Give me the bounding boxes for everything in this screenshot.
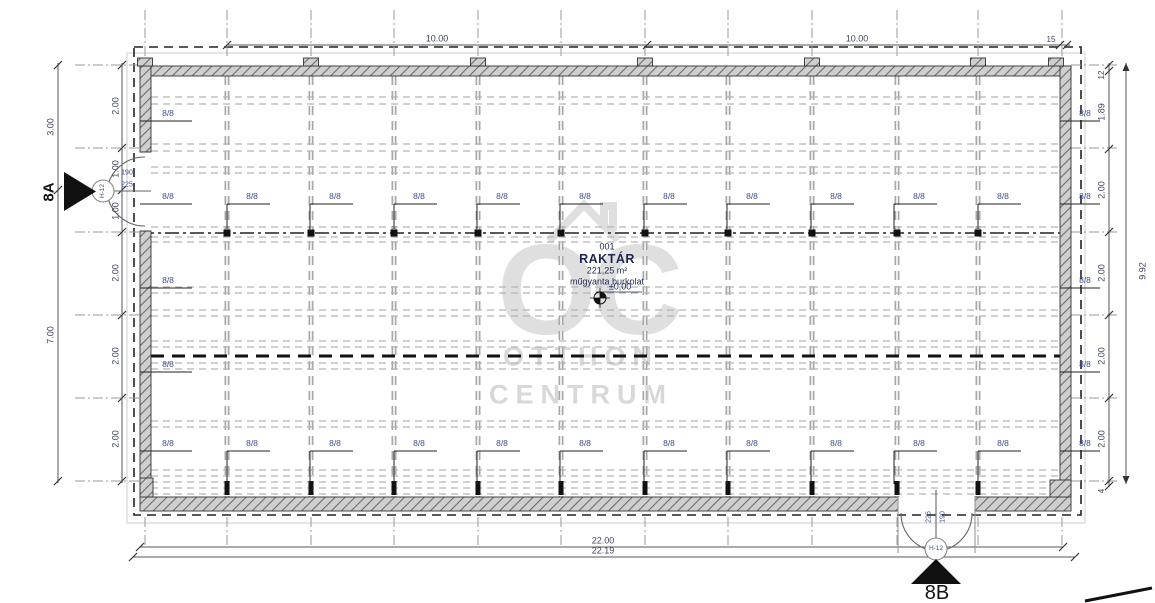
wall-pilasters: [138, 58, 1064, 66]
unit-size-label: 8/8: [496, 192, 508, 201]
unit-size-label: 8/8: [162, 109, 174, 118]
unit-size-label: 8/8: [1079, 192, 1091, 201]
dim-right-outer: 9.92: [1139, 262, 1148, 280]
room-floor-finish: műgyanta burkolat: [570, 278, 644, 287]
unit-size-label: 8/8: [746, 439, 758, 448]
unit-size-label: 8/8: [246, 439, 258, 448]
dim-right-inner-3: 2.00: [1098, 181, 1107, 199]
section-arrow-8b: [911, 559, 961, 584]
door-tag-left: H-12: [100, 184, 107, 198]
corner-diagonal-line: [1085, 588, 1152, 601]
unit-label-leaders: [140, 121, 1100, 484]
unit-size-label: 8/8: [579, 192, 591, 201]
dim-bottom-2: 22.19: [592, 547, 615, 556]
unit-size-label: 8/8: [1079, 109, 1091, 118]
dim-bottom-1: 22.00: [592, 537, 615, 546]
section-arrow-8a: [64, 172, 96, 211]
unit-size-label: 8/8: [162, 192, 174, 201]
left-door-width: 190: [121, 170, 133, 177]
unit-size-label: 8/8: [746, 192, 758, 201]
section-label-8b: 8B: [925, 583, 949, 603]
unit-size-label: 8/8: [663, 439, 675, 448]
unit-size-label: 8/8: [830, 192, 842, 201]
dim-left-inner-1: 2.00: [112, 97, 121, 115]
dim-top-3: 15: [1047, 36, 1056, 44]
dim-left-inner-2: 1.00: [112, 160, 121, 178]
unit-size-label: 8/8: [162, 360, 174, 369]
dim-right-inner-4: 2.00: [1098, 264, 1107, 282]
unit-size-label: 8/8: [162, 439, 174, 448]
dim-left-inner-5: 2.00: [112, 347, 121, 365]
unit-size-label: 8/8: [496, 439, 508, 448]
left-door-height: 225: [121, 182, 133, 189]
unit-size-label: 8/8: [329, 439, 341, 448]
room-area: 221,25 m²: [587, 267, 628, 276]
unit-size-label: 8/8: [413, 192, 425, 201]
unit-size-label: 8/8: [329, 192, 341, 201]
dim-left-inner-3: 1.00: [112, 202, 121, 220]
eaves-outline: [127, 53, 1085, 523]
room-name: RAKTÁR: [579, 253, 635, 266]
dim-right-inner-6: 2.00: [1098, 430, 1107, 448]
dim-right-inner-1: 12: [1098, 71, 1106, 80]
room-number: 001: [599, 243, 614, 252]
floor-plan: OC OTTHON CENTRUM: [0, 0, 1155, 603]
plan-linework: [0, 0, 1155, 603]
unit-size-label: 8/8: [413, 439, 425, 448]
unit-size-label: 8/8: [913, 439, 925, 448]
room-level: ±0,00: [609, 283, 631, 292]
section-label-8a: 8A: [42, 182, 57, 201]
dimension-ticks: [54, 41, 1113, 561]
unit-size-label: 8/8: [913, 192, 925, 201]
unit-size-label: 8/8: [579, 439, 591, 448]
dim-left-inner-6: 2.00: [112, 430, 121, 448]
unit-size-label: 8/8: [246, 192, 258, 201]
bottom-door-height: 190: [940, 511, 947, 523]
dimension-lines: [58, 45, 1126, 557]
dim-right-inner-7: 4: [1098, 489, 1106, 493]
unit-size-label: 8/8: [1079, 276, 1091, 285]
dim-top-1: 10.00: [426, 35, 449, 44]
unit-size-label: 8/8: [830, 439, 842, 448]
unit-size-label: 8/8: [162, 276, 174, 285]
dim-right-inner-5: 2.00: [1098, 347, 1107, 365]
walls: [140, 66, 1071, 511]
unit-size-label: 8/8: [1079, 439, 1091, 448]
door-tag-bottom: H-12: [929, 546, 943, 553]
unit-size-label: 8/8: [997, 192, 1009, 201]
dim-left-inner-4: 2.00: [112, 264, 121, 282]
dim-left-outer-2: 7.00: [47, 326, 56, 344]
unit-size-label: 8/8: [997, 439, 1009, 448]
dim-top-2: 10.00: [846, 35, 869, 44]
bottom-door-width: 225: [926, 511, 933, 523]
dim-left-outer-1: 3.00: [47, 118, 56, 136]
dim-right-inner-2: 1.89: [1098, 103, 1107, 121]
unit-size-label: 8/8: [1079, 360, 1091, 369]
unit-size-label: 8/8: [663, 192, 675, 201]
